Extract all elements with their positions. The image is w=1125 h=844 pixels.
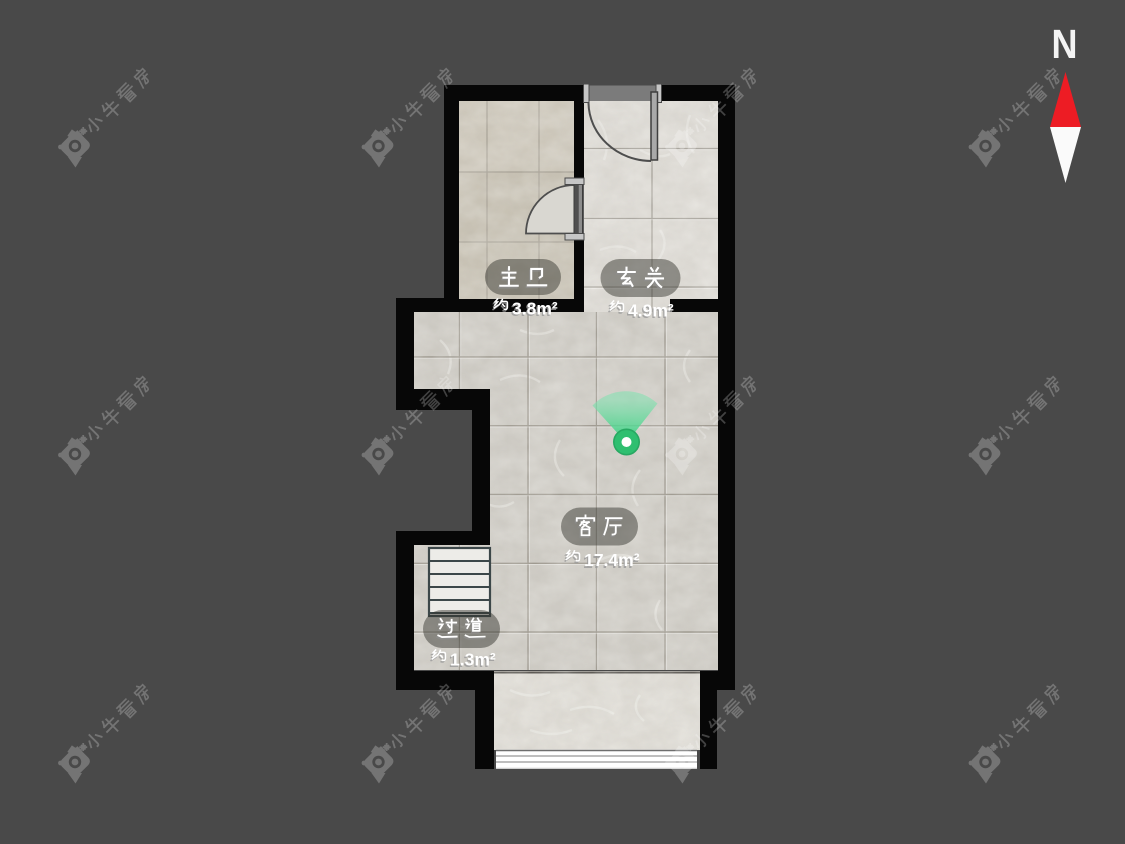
svg-text:1.3m²: 1.3m² bbox=[450, 650, 496, 670]
svg-text:3.8m²: 3.8m² bbox=[512, 299, 558, 319]
svg-text:4.9m²: 4.9m² bbox=[628, 301, 674, 321]
svg-text:N: N bbox=[1052, 21, 1078, 67]
svg-text:17.4m²: 17.4m² bbox=[584, 550, 640, 570]
